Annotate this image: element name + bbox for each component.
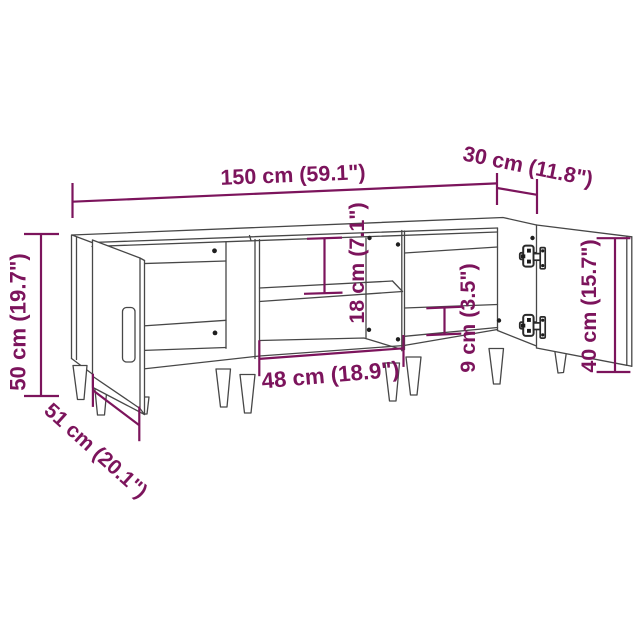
svg-text:9 cm (3.5"): 9 cm (3.5") xyxy=(456,263,480,372)
svg-text:40 cm (15.7"): 40 cm (15.7") xyxy=(577,239,601,372)
svg-text:50 cm (19.7"): 50 cm (19.7") xyxy=(6,253,31,391)
svg-text:18 cm (7.1"): 18 cm (7.1") xyxy=(345,202,369,323)
